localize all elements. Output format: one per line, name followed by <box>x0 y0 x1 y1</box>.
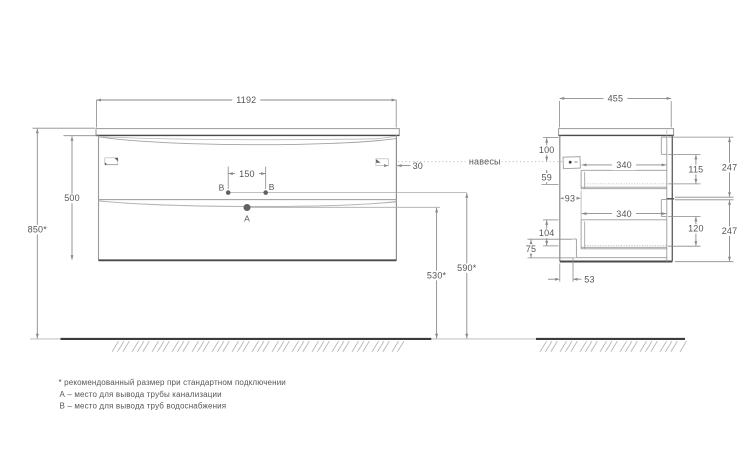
svg-text:340: 340 <box>616 160 632 170</box>
svg-text:A: A <box>244 214 250 224</box>
svg-text:104: 104 <box>539 228 555 238</box>
svg-text:53: 53 <box>584 274 594 284</box>
svg-text:1192: 1192 <box>236 95 256 105</box>
svg-text:120: 120 <box>688 224 704 234</box>
svg-text:150: 150 <box>239 169 255 179</box>
svg-text:75: 75 <box>526 244 536 254</box>
svg-text:100: 100 <box>539 145 555 155</box>
svg-text:B: B <box>219 183 225 193</box>
svg-text:500: 500 <box>64 193 80 203</box>
svg-text:* рекомендованный размер при с: * рекомендованный размер при стандартном… <box>59 378 286 387</box>
svg-text:247: 247 <box>722 162 738 172</box>
svg-text:В – место для вывода труб водо: В – место для вывода труб водоснабжения <box>60 402 227 411</box>
svg-text:93: 93 <box>565 193 575 203</box>
svg-text:340: 340 <box>616 209 632 219</box>
svg-text:59: 59 <box>541 172 551 182</box>
svg-text:B: B <box>269 182 275 192</box>
svg-text:А – место для вывода трубы кан: А – место для вывода трубы канализации <box>60 390 222 399</box>
svg-text:115: 115 <box>688 164 703 174</box>
svg-text:навесы: навесы <box>469 156 501 166</box>
svg-text:455: 455 <box>608 94 624 104</box>
svg-text:530*: 530* <box>427 270 447 280</box>
svg-text:30: 30 <box>413 161 423 171</box>
svg-text:590*: 590* <box>457 263 477 273</box>
svg-text:247: 247 <box>722 226 738 236</box>
svg-text:850*: 850* <box>28 224 48 234</box>
